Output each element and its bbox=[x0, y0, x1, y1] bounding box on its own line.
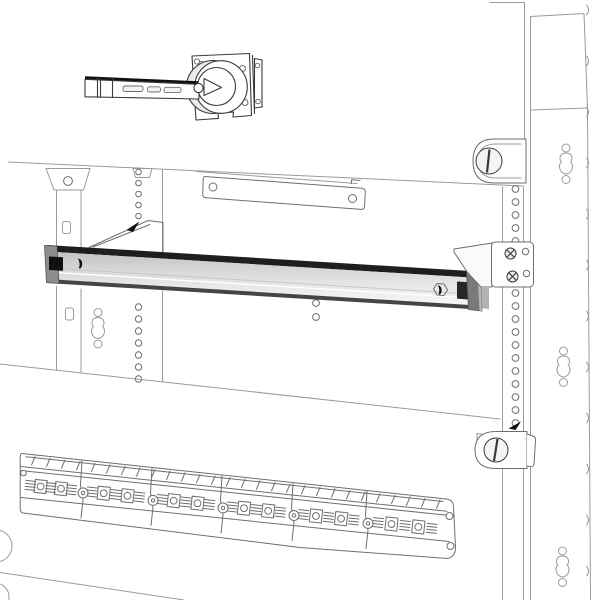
perforation-hole bbox=[313, 314, 320, 321]
perforation-hole bbox=[135, 340, 141, 346]
perforation-hole bbox=[512, 342, 519, 349]
keyhole-cutout bbox=[92, 318, 105, 339]
lock-hook bbox=[527, 434, 536, 467]
din-rail bbox=[45, 245, 490, 311]
segment-junction-hole bbox=[218, 503, 228, 513]
perforation-hole bbox=[136, 180, 142, 186]
segment-junction-hole bbox=[78, 488, 88, 498]
lever-grip-slot bbox=[164, 87, 181, 92]
keyhole-cutout bbox=[557, 356, 570, 377]
edge-hook-mark bbox=[587, 413, 589, 423]
mounting-slot bbox=[66, 308, 74, 320]
rotary-switch-with-handle-lever bbox=[85, 54, 262, 121]
perforation-hole bbox=[512, 355, 519, 362]
perforation-hole bbox=[512, 186, 519, 193]
din-rail-left-bracket bbox=[89, 221, 163, 253]
mounting-slot bbox=[63, 222, 71, 234]
perforation-hole bbox=[512, 290, 519, 297]
perforation-hole bbox=[135, 304, 141, 310]
perforation-hole bbox=[136, 213, 142, 219]
bottom-left-cutouts bbox=[0, 530, 184, 600]
panel-right-edge bbox=[490, 3, 525, 151]
lever-grip-slot bbox=[148, 87, 161, 92]
handle-lever bbox=[85, 76, 199, 99]
lower-panel-edge bbox=[0, 364, 500, 419]
perforation-hole bbox=[135, 328, 141, 334]
perforation-hole bbox=[512, 212, 519, 219]
edge-hook-mark bbox=[587, 566, 589, 576]
perforation-hole bbox=[136, 169, 142, 175]
perforation-hole bbox=[313, 300, 320, 307]
perforation-hole bbox=[135, 352, 141, 358]
perforation-hole bbox=[136, 191, 142, 197]
quarter-turn-lock-upper bbox=[473, 139, 526, 183]
edge-hook-mark bbox=[587, 56, 589, 66]
perforation-hole bbox=[512, 394, 519, 401]
quarter-turn-lock-lower bbox=[475, 422, 536, 469]
terminal-block-strip bbox=[20, 453, 455, 558]
bracket-arrow-mark bbox=[127, 222, 140, 233]
edge-hook-mark bbox=[587, 5, 589, 15]
illustration-canvas bbox=[0, 0, 600, 600]
enclosure-line-drawing bbox=[0, 0, 600, 600]
edge-hook-mark bbox=[587, 311, 589, 321]
edge-hook-mark bbox=[587, 515, 589, 525]
bracket-screw bbox=[505, 248, 516, 259]
perforation-hole bbox=[512, 329, 519, 336]
perforation-hole bbox=[135, 316, 141, 322]
segment-junction-hole bbox=[148, 495, 158, 505]
edge-hook-mark bbox=[587, 464, 589, 474]
keyhole-cutout bbox=[560, 153, 573, 174]
rail-left-slot bbox=[49, 257, 63, 271]
perforation-hole bbox=[512, 316, 519, 323]
switch-shaft-dot bbox=[194, 83, 203, 92]
perforation-hole bbox=[136, 202, 142, 208]
perforation-hole bbox=[512, 199, 519, 206]
perforation-hole bbox=[512, 407, 519, 414]
segment-junction-hole bbox=[363, 518, 373, 528]
perforation-hole bbox=[512, 368, 519, 375]
perforation-hole bbox=[135, 364, 141, 370]
lever-grip-slot bbox=[123, 86, 143, 92]
segment-junction-hole bbox=[289, 510, 299, 520]
keyhole-cutout bbox=[556, 556, 569, 577]
perforation-hole bbox=[512, 225, 519, 232]
bracket-screw bbox=[507, 271, 518, 282]
perforation-hole bbox=[512, 381, 519, 388]
edge-hook-mark bbox=[587, 362, 589, 372]
perforation-hole bbox=[512, 303, 519, 310]
